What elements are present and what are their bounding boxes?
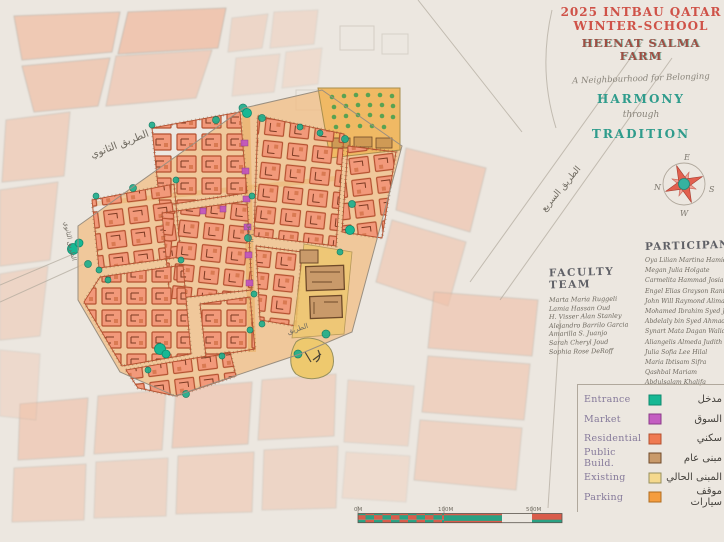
legend-arabic-label: مدخل — [662, 394, 722, 405]
participant-name: Mohamed Ibrahim Syed Jamil — [645, 307, 724, 317]
title-line-3: HEENAT SALMA FARM — [560, 37, 722, 63]
legend-label: Public Build. — [584, 447, 648, 469]
legend-swatch-entrance — [648, 394, 662, 406]
road-label-center: الطريق — [246, 224, 254, 243]
legend-arabic-label: سكني — [662, 433, 722, 444]
title-dedication: A Neighbourhood for Belonging — [560, 72, 722, 87]
legend-swatch-residential — [648, 433, 662, 445]
legend-arabic-label: السوق — [662, 414, 722, 425]
hand-drawn-masterplan-sheet: الطريق الثانوي الطريق السريع الطريق الثا… — [0, 0, 724, 542]
legend-row-public-building: Public Build. مبنى عام — [584, 449, 722, 469]
legend-arabic-label: المبنى الحالي — [662, 472, 722, 483]
legend-label: Residential — [584, 433, 648, 444]
compass-label-s: S — [709, 185, 715, 194]
legend-swatch-parking — [648, 491, 662, 503]
participant-name: John Will Raymond Alimara — [645, 297, 724, 307]
title-line-1: 2025 INTBAU QATAR — [560, 6, 722, 20]
faculty-names: Marta Maria Ruggeli Lamia Hassan Oud H. … — [549, 295, 657, 355]
participant-name: Synart Mata Dagan Walid — [645, 327, 724, 337]
title-tradition: TRADITION — [560, 128, 722, 142]
legend-arabic-label: مبنى عام — [662, 453, 722, 464]
legend-swatch-public-building — [648, 452, 662, 464]
faculty-name: Sophia Rose DeRoff — [549, 346, 657, 356]
participants-block: PARTICIPANTS Oya Lilian Martina Hamida M… — [645, 240, 724, 389]
legend-swatch-existing — [648, 472, 662, 484]
legend-row-market: Market السوق — [584, 410, 722, 430]
legend-label: Market — [584, 414, 648, 425]
legend-label: Parking — [584, 492, 648, 503]
title-block: 2025 INTBAU QATAR WINTER-SCHOOL HEENAT S… — [560, 6, 722, 142]
participant-name: Julia Sofia Lee Hilal — [645, 348, 724, 358]
participant-name: Megan Julia Holgate — [645, 266, 724, 276]
legend-arabic-label: موقف سيارات — [662, 486, 722, 508]
participant-name: Maria Ibtisam Sifra — [645, 358, 724, 368]
faculty-team-heading: FACULTY TEAM — [549, 265, 658, 292]
participant-name: Abdelaly bin Syed Ahmad — [645, 317, 724, 327]
legend-swatch-market — [648, 413, 662, 425]
participant-name: Carmelita Hammad Josiane — [645, 276, 724, 286]
legend-row-entrance: Entrance مدخل — [584, 390, 722, 410]
legend-label: Entrance — [584, 394, 648, 405]
legend-label: Existing — [584, 472, 648, 483]
participant-name: Engel Elias Grayson Rania — [645, 287, 724, 297]
participant-name: Qashbal Mariam — [645, 368, 724, 378]
compass-label-w: W — [680, 209, 689, 218]
legend-row-parking: Parking موقف سيارات — [584, 488, 722, 508]
scale-label-end: 500M — [526, 507, 541, 513]
legend-row-existing: Existing المبنى الحالي — [584, 468, 722, 488]
title-harmony: HARMONY — [560, 93, 722, 107]
participant-names: Oya Lilian Martina Hamida Megan Julia Ho… — [645, 256, 724, 389]
legend-row-residential: Residential سكني — [584, 429, 722, 449]
title-line-2: WINTER-SCHOOL — [560, 20, 722, 34]
scale-label-mid: 100M — [438, 507, 453, 513]
participant-name: Aliangelis Almeda Judith — [645, 338, 724, 348]
participants-heading: PARTICIPANTS — [645, 239, 724, 253]
compass-label-e: E — [683, 153, 690, 162]
participant-name: Oya Lilian Martina Hamida — [645, 256, 724, 266]
compass-label-n: N — [653, 183, 662, 192]
faculty-team-block: FACULTY TEAM Marta Maria Ruggeli Lamia H… — [549, 266, 657, 355]
title-through: through — [560, 110, 722, 120]
legend-box: Entrance مدخل Market السوق Residential س… — [577, 384, 724, 512]
scale-label-0: 0M — [354, 507, 362, 513]
